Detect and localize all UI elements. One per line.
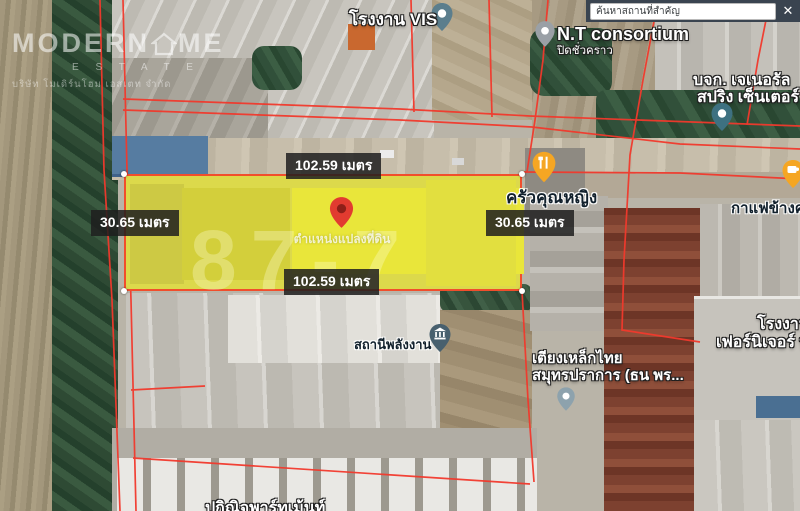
plot-location-pin-icon[interactable]: [328, 196, 355, 234]
plot-corner-marker: [519, 171, 525, 177]
terrain-tree-clump-top: [252, 46, 302, 90]
plot-corner-marker: [121, 171, 127, 177]
dimension-badge-top: 102.59 เมตร: [286, 153, 381, 179]
search-close-button[interactable]: ✕: [776, 3, 800, 19]
energy-station-pin-icon[interactable]: [428, 322, 452, 359]
thai-steel-bed-label-line2[interactable]: สมุทรปราการ (ธน พร...: [532, 363, 684, 387]
dimension-badge-right: 30.65 เมตร: [486, 210, 574, 236]
khrua-khunying-label[interactable]: ครัวคุณหญิง: [506, 184, 597, 211]
brand-watermark: MODERN ME E S T A T E บริษัท โมเดิร์นโฮม…: [12, 28, 225, 92]
terrain-vehicle: [452, 158, 464, 165]
satellite-map[interactable]: 87-7 102.59 เมตร 102.59 เมตร 30.65 เมตร …: [0, 0, 800, 511]
apartment-label[interactable]: ปกิณิจพาร์ทเม้นท์: [205, 496, 325, 511]
furniture-factory-label-line2[interactable]: เฟอร์นิเจอร์ บ: [716, 330, 800, 355]
terrain-blue-patch-bottom-right: [756, 396, 800, 418]
brand-watermark-estate: E S T A T E: [72, 62, 225, 73]
house-icon: [151, 31, 177, 57]
nt-consortium-pin-icon[interactable]: [534, 20, 556, 53]
coffee-shop-label[interactable]: กาแฟข้างคล: [731, 196, 800, 220]
brand-watermark-left: MODERN: [12, 28, 150, 59]
dimension-badge-left: 30.65 เมตร: [91, 210, 179, 236]
plot-corner-marker: [519, 288, 525, 294]
plot-pin-caption: ตำแหน่งแปลงที่ดิน: [276, 230, 408, 249]
dimension-badge-bottom: 102.59 เมตร: [284, 269, 379, 295]
general-spring-pin-icon[interactable]: [710, 102, 734, 137]
energy-station-label[interactable]: สถานีพลังงาน: [354, 334, 431, 355]
terrain-vehicle: [380, 150, 394, 158]
thai-steel-bed-pin-icon[interactable]: [556, 386, 576, 417]
search-input[interactable]: [590, 3, 776, 20]
vis-factory-label[interactable]: โรงงาน VIS: [349, 6, 437, 33]
terrain-right-gray-roof-c: [694, 420, 800, 511]
brand-watermark-company: บริษัท โมเดิร์นโฮม เอสเตท จำกัด: [12, 77, 225, 92]
search-bar: ✕: [586, 0, 800, 22]
terrain-bottom-skylight-row: [117, 458, 537, 511]
brand-watermark-right: ME: [178, 28, 225, 59]
terrain-blue-roof-house: [112, 136, 208, 177]
coffee-pin-icon[interactable]: [781, 158, 800, 195]
nt-consortium-status: ปิดชั่วคราว: [557, 42, 613, 60]
plot-corner-marker: [121, 288, 127, 294]
